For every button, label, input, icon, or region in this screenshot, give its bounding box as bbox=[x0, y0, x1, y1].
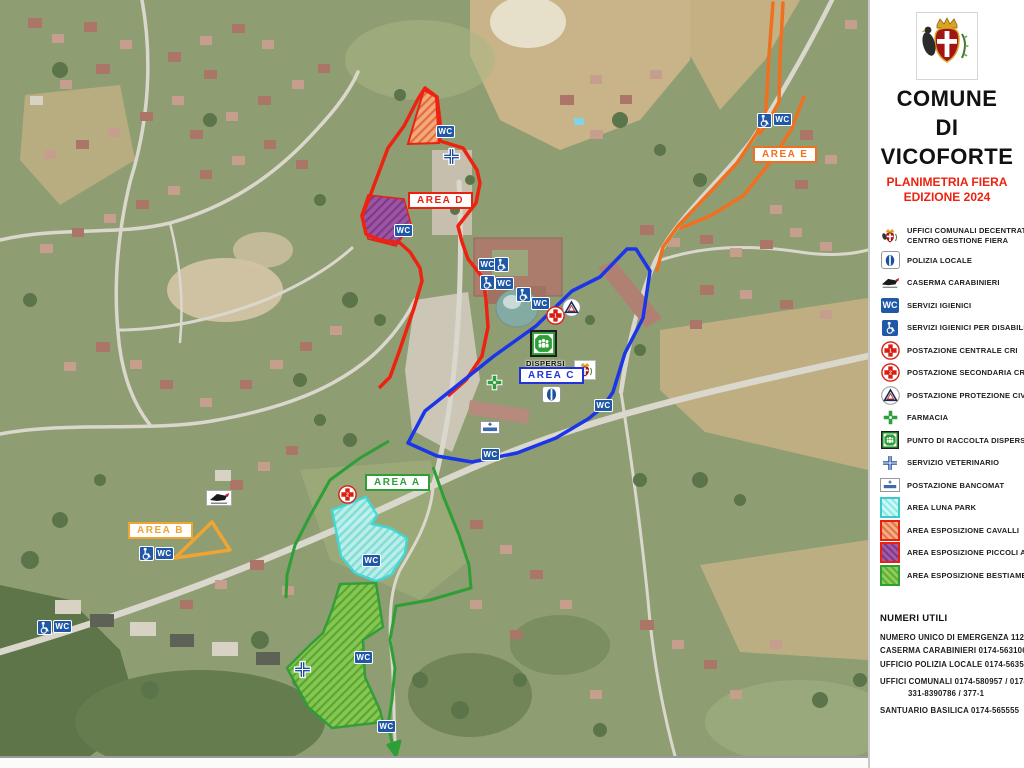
pharmacy-icon bbox=[486, 374, 503, 391]
legend-item: FARMACIA bbox=[880, 407, 1024, 430]
area-e-label: AREA E bbox=[753, 146, 817, 163]
useful-number-line: 331-8390786 / 377-1 bbox=[908, 689, 1024, 698]
wc-icon: WC bbox=[481, 448, 500, 461]
map-bottom-border bbox=[0, 756, 868, 768]
horses-swatch bbox=[880, 520, 900, 541]
svg-text:2: 2 bbox=[346, 492, 349, 498]
small-animals-swatch bbox=[880, 542, 900, 563]
title-line: DI bbox=[870, 113, 1024, 142]
planimetria-poster: { "header": { "title_line1": "COMUNE", "… bbox=[0, 0, 1024, 768]
wc-icon: WC bbox=[394, 224, 413, 237]
municipal-crest-icon bbox=[880, 228, 900, 244]
atm-icon bbox=[480, 421, 500, 434]
legend-item: POLIZIA LOCALE bbox=[880, 249, 1024, 272]
carabinieri-icon bbox=[880, 276, 900, 290]
wc-icon: WC bbox=[880, 298, 900, 313]
accessible-wc-icon bbox=[757, 113, 772, 128]
satellite-map: WC WC WC WC WC WC WC WC WC WC WC WC WC 1… bbox=[0, 0, 868, 756]
legend-item: PUNTO DI RACCOLTA DISPERSI bbox=[880, 429, 1024, 452]
wc-icon: WC bbox=[155, 547, 174, 560]
wc-icon: WC bbox=[53, 620, 72, 633]
area-b-label: AREA B bbox=[128, 522, 193, 539]
veterinary-icon bbox=[293, 660, 312, 679]
legend-item: AREA ESPOSIZIONE CAVALLI bbox=[880, 519, 1024, 542]
wc-icon: WC bbox=[773, 113, 792, 126]
wc-icon: WC bbox=[495, 277, 514, 290]
legend-item: AREA ESPOSIZIONE BESTIAME bbox=[880, 564, 1024, 587]
livestock-swatch bbox=[880, 565, 900, 586]
legend-item: 1 POSTAZIONE CENTRALE CRI bbox=[880, 339, 1024, 362]
municipal-crest-art bbox=[920, 16, 974, 76]
wc-icon: WC bbox=[436, 125, 455, 138]
civil-protection-icon bbox=[880, 386, 900, 405]
red-cross-1-icon: 1 bbox=[880, 341, 900, 360]
svg-text:1: 1 bbox=[554, 313, 557, 319]
area-d-label: AREA D bbox=[408, 192, 473, 209]
legend-item: AREA ESPOSIZIONE PICCOLI ANIMALI bbox=[880, 542, 1024, 565]
poster-subtitle: PLANIMETRIA FIERA EDIZIONE 2024 bbox=[870, 175, 1024, 205]
red-cross-2-icon: 2 bbox=[880, 363, 900, 382]
legend-item: CASERMA CARABINIERI bbox=[880, 272, 1024, 295]
svg-text:2: 2 bbox=[889, 371, 892, 377]
useful-number-line: CASERMA CARABINIERI 0174-563106 bbox=[880, 646, 1024, 655]
veterinary-icon bbox=[442, 147, 461, 166]
satellite-base-art bbox=[0, 0, 868, 756]
area-c-label: AREA C bbox=[519, 367, 584, 384]
accessible-wc-icon bbox=[494, 257, 509, 272]
useful-number-line: SANTUARIO BASILICA 0174-565555 bbox=[880, 706, 1024, 715]
atm-icon bbox=[880, 478, 900, 492]
wc-icon: WC bbox=[362, 554, 381, 567]
red-cross-secondary-icon: 2 bbox=[338, 485, 357, 504]
legend-item: UFFICI COMUNALI DECENTRATICENTRO GESTION… bbox=[880, 222, 1024, 249]
lost-people-point-icon bbox=[880, 431, 900, 449]
legend-item: AREA LUNA PARK bbox=[880, 497, 1024, 520]
accessible-wc-icon bbox=[480, 275, 495, 290]
pharmacy-icon bbox=[880, 409, 900, 426]
veterinary-icon bbox=[880, 454, 900, 472]
legend: UFFICI COMUNALI DECENTRATICENTRO GESTION… bbox=[880, 222, 1024, 587]
useful-number-line: NUMERO UNICO DI EMERGENZA 112 bbox=[880, 633, 1024, 642]
legend-item: 2 POSTAZIONE SECONDARIA CRI bbox=[880, 362, 1024, 385]
svg-text:1: 1 bbox=[889, 348, 892, 354]
accessible-wc-icon bbox=[139, 546, 154, 561]
legend-sidebar: COMUNE DI VICOFORTE PLANIMETRIA FIERA ED… bbox=[868, 0, 1024, 768]
title-line: VICOFORTE bbox=[870, 142, 1024, 171]
legend-item: SERVIZIO VETERINARIO bbox=[880, 452, 1024, 475]
useful-numbers: NUMERI UTILI NUMERO UNICO DI EMERGENZA 1… bbox=[880, 613, 1024, 716]
subtitle-line: EDIZIONE 2024 bbox=[870, 190, 1024, 205]
subtitle-line: PLANIMETRIA FIERA bbox=[870, 175, 1024, 190]
useful-number-line: UFFICI COMUNALI 0174-580957 / 0174- bbox=[880, 677, 1024, 686]
carabinieri-icon bbox=[206, 490, 232, 506]
poster-title: COMUNE DI VICOFORTE bbox=[870, 84, 1024, 171]
title-line: COMUNE bbox=[870, 84, 1024, 113]
lost-people-point-icon bbox=[530, 330, 557, 357]
wc-icon: WC bbox=[354, 651, 373, 664]
municipal-crest bbox=[916, 12, 978, 80]
useful-number-line: UFFICIO POLIZIA LOCALE 0174-563594 bbox=[880, 660, 1024, 669]
wc-icon: WC bbox=[377, 720, 396, 733]
luna-park-swatch bbox=[880, 497, 900, 518]
legend-item: POSTAZIONE PROTEZIONE CIVILE bbox=[880, 384, 1024, 407]
local-police-icon bbox=[542, 386, 561, 403]
accessible-wc-icon bbox=[880, 320, 900, 336]
accessible-wc-icon bbox=[516, 287, 531, 302]
civil-protection-icon bbox=[562, 298, 581, 317]
local-police-icon bbox=[880, 251, 900, 269]
legend-item: SERVIZI IGIENICI PER DISABILI bbox=[880, 317, 1024, 340]
legend-item: POSTAZIONE BANCOMAT bbox=[880, 474, 1024, 497]
legend-item: WC SERVIZI IGIENICI bbox=[880, 294, 1024, 317]
useful-numbers-title: NUMERI UTILI bbox=[880, 613, 1024, 624]
accessible-wc-icon bbox=[37, 620, 52, 635]
wc-icon: WC bbox=[594, 399, 613, 412]
area-a-label: AREA A bbox=[365, 474, 430, 491]
